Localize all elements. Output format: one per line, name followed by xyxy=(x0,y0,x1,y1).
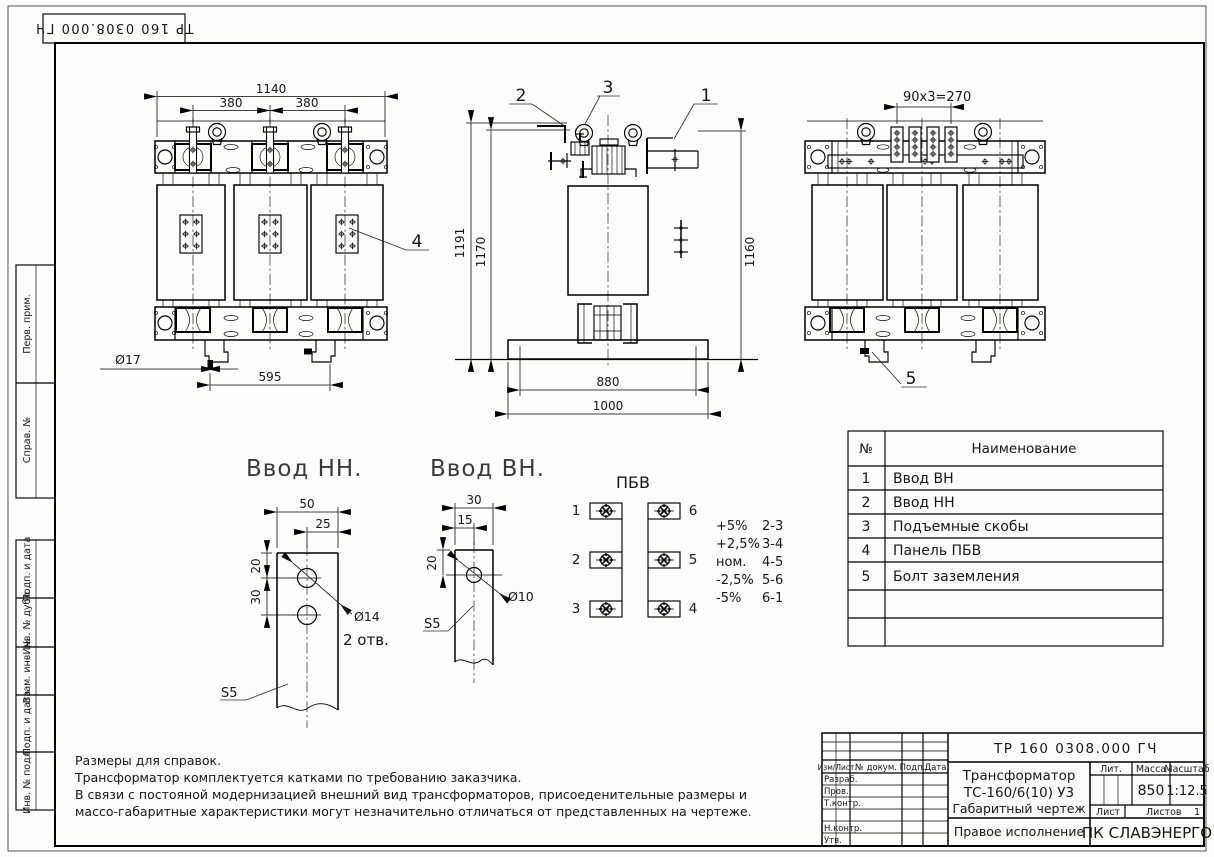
tb-lit-label: Лит. xyxy=(1100,764,1122,775)
hv-thickness: S5 xyxy=(424,617,441,632)
pbv-tap-list: +5% 2-3 +2,5% 3-4 ном. 4-5 -2,5% 5-6 -5%… xyxy=(716,519,783,606)
tb-col-doc: № докум. xyxy=(855,763,897,773)
notes: Размеры для справок. Трансформатор компл… xyxy=(74,753,752,819)
pbv-title: ПБВ xyxy=(616,473,650,492)
side-dim-1170: 1170 xyxy=(474,237,488,268)
tb-col-sign: Подп. xyxy=(900,763,926,773)
hv-dim-20: 20 xyxy=(425,555,439,570)
table-row: 4 Панель ПБВ xyxy=(862,543,982,559)
lv-bushing-detail: Ввод НН. 50 25 20 30 Ø14 2 отв. S5 xyxy=(220,456,389,728)
hv-detail-title: Ввод ВН. xyxy=(430,456,545,482)
side-view: 2 3 1 1191 1170 xyxy=(453,78,758,419)
side-callout-3: 3 xyxy=(603,78,614,98)
front-clamp-1 xyxy=(175,127,211,173)
tb-row-ncontr: Н.контр. xyxy=(824,824,862,834)
parts-col-name: Наименование xyxy=(972,441,1077,457)
tb-doc-number: ТР 160 0308.000 ГЧ xyxy=(993,741,1158,757)
lv-holes-note: 2 отв. xyxy=(343,631,389,649)
drawing-canvas: ТР 160 0308.000 ГЧ Перв. прим. Справ. № … xyxy=(0,0,1214,857)
tb-sheets-value: 1 xyxy=(1194,807,1200,818)
pbv-terminal-2: 2 xyxy=(572,552,581,568)
tap-label: -2,5% xyxy=(716,573,754,588)
pbv-diagram: ПБВ 1 2 3 6 5 4 +5% 2-3 +2,5% 3-4 ном. 4… xyxy=(572,473,784,617)
lv-thickness: S5 xyxy=(221,686,238,701)
row-name: Подъемные скобы xyxy=(893,519,1029,535)
row-name: Болт заземления xyxy=(893,569,1020,585)
tb-row-tcontr: Т.контр. xyxy=(823,799,861,809)
lv-dim-50: 50 xyxy=(299,497,314,511)
row-no: 1 xyxy=(862,471,871,487)
parts-table: № Наименование 1 Ввод ВН 2 Ввод НН 3 Под… xyxy=(848,431,1163,646)
hv-dim-30: 30 xyxy=(466,493,481,507)
pbv-terminal-3: 3 xyxy=(572,601,581,617)
tb-col-date: Дата xyxy=(924,763,946,773)
lv-detail-title: Ввод НН. xyxy=(246,456,363,482)
side-dim-1191: 1191 xyxy=(453,228,467,259)
table-row: 2 Ввод НН xyxy=(862,495,955,511)
title-block: ТР 160 0308.000 ГЧ Трансформатор ТС-160/… xyxy=(818,733,1213,846)
tb-mass-value: 850 xyxy=(1138,783,1165,799)
row-name: Ввод ВН xyxy=(893,471,954,487)
hv-dim-15: 15 xyxy=(457,513,472,527)
margin-inv-podl: Инв. № подл. xyxy=(22,748,33,814)
tb-row-utv: Утв. xyxy=(824,836,842,846)
table-row: 1 Ввод ВН xyxy=(862,471,954,487)
note-line: Трансформатор комплектуется катками по т… xyxy=(74,770,521,785)
drawing-sheet: ТР 160 0308.000 ГЧ Перв. прим. Справ. № … xyxy=(0,0,1214,857)
tap-pins: 2-3 xyxy=(762,519,783,534)
front-pbv-panels xyxy=(180,215,358,253)
row-no: 3 xyxy=(862,519,871,535)
front-dim-1140: 1140 xyxy=(256,82,287,96)
side-callout-2: 2 xyxy=(516,86,527,106)
tb-company: ПК СЛАВЭНЕРГО xyxy=(1082,824,1212,842)
tap-pins: 6-1 xyxy=(762,591,783,606)
tb-col-izm: Изм/Лист xyxy=(818,763,855,772)
rear-tap-strips xyxy=(891,127,957,162)
tb-mass-label: Масса xyxy=(1136,764,1166,775)
tap-label: +2,5% xyxy=(716,537,760,552)
margin-columns: Перв. прим. Справ. № Подп. и дата Инв. №… xyxy=(16,265,55,814)
tb-sheets-label: Листов xyxy=(1146,807,1182,818)
tb-variant: Правое исполнение xyxy=(954,824,1085,839)
tb-doc-type: Габаритный чертеж xyxy=(952,801,1085,816)
tap-label: -5% xyxy=(716,591,741,606)
front-dim-380-left: 380 xyxy=(220,96,243,110)
pbv-terminal-6: 6 xyxy=(689,503,698,519)
pbv-terminal-5: 5 xyxy=(689,552,698,568)
front-clamp-3 xyxy=(327,127,363,173)
side-dim-880: 880 xyxy=(597,375,620,389)
pbv-terminal-4: 4 xyxy=(689,601,698,617)
parts-col-no: № xyxy=(859,442,873,457)
tap-label: ном. xyxy=(716,555,746,570)
sheet-frame xyxy=(8,6,1206,851)
tb-row-razrab: Разраб. xyxy=(824,775,857,785)
front-callout-4: 4 xyxy=(412,232,423,252)
tb-product-name-2: ТС-160/6(10) У3 xyxy=(963,785,1074,801)
rear-view: 90x3=270 xyxy=(805,90,1045,389)
pbv-terminal-1: 1 xyxy=(572,503,581,519)
lv-dim-30: 30 xyxy=(249,589,263,604)
lv-dim-20: 20 xyxy=(249,558,263,573)
tap-pins: 3-4 xyxy=(762,537,783,552)
hv-dim-dia: Ø10 xyxy=(508,589,534,604)
front-dim-hole: Ø17 xyxy=(115,352,141,367)
row-no: 4 xyxy=(862,543,871,559)
rear-callout-5: 5 xyxy=(906,369,917,389)
rear-dim-taps: 90x3=270 xyxy=(903,90,971,105)
tap-label: +5% xyxy=(716,519,748,534)
note-line: В связи с постояной модернизацией внешни… xyxy=(75,787,747,802)
lv-dim-25: 25 xyxy=(315,517,330,531)
side-callout-1: 1 xyxy=(701,86,712,106)
front-clamp-2 xyxy=(252,127,288,173)
front-dim-380-right: 380 xyxy=(296,96,319,110)
row-no: 2 xyxy=(862,495,871,511)
corner-stamp: ТР 160 0308.000 ГЧ xyxy=(35,14,195,43)
row-name: Панель ПБВ xyxy=(893,543,981,559)
corner-doc-number: ТР 160 0308.000 ГЧ xyxy=(35,20,195,35)
tb-scale-value: 1:12.5 xyxy=(1166,784,1208,799)
tap-pins: 5-6 xyxy=(762,573,783,588)
tap-pins: 4-5 xyxy=(762,555,783,570)
hv-bushing-detail: Ввод ВН. 30 15 20 Ø10 S5 xyxy=(423,456,545,683)
row-no: 5 xyxy=(862,569,871,585)
tb-row-prov: Пров. xyxy=(824,787,849,797)
lv-dim-dia: Ø14 xyxy=(354,609,380,624)
front-bottom-clamps xyxy=(176,308,362,332)
front-view: 1140 380 380 xyxy=(100,82,429,391)
rear-bottom-clamps xyxy=(830,308,1017,332)
margin-perv: Перв. прим. xyxy=(22,294,33,353)
front-dim-feet: 595 xyxy=(259,370,282,384)
tb-scale-label: Масштаб xyxy=(1164,764,1209,775)
note-line: Размеры для справок. xyxy=(75,753,221,768)
tb-product-name-1: Трансформатор xyxy=(962,768,1076,784)
side-dim-1160: 1160 xyxy=(743,237,757,268)
note-line: массо-габаритные характеристики могут не… xyxy=(75,804,752,819)
margin-sprav: Справ. № xyxy=(22,417,33,463)
tb-sheet-label: Лист xyxy=(1096,807,1121,818)
side-dim-1000: 1000 xyxy=(593,399,624,413)
row-name: Ввод НН xyxy=(893,495,955,511)
table-row: 3 Подъемные скобы xyxy=(862,519,1029,535)
margin-podp2: Подп. и дата xyxy=(22,691,33,756)
